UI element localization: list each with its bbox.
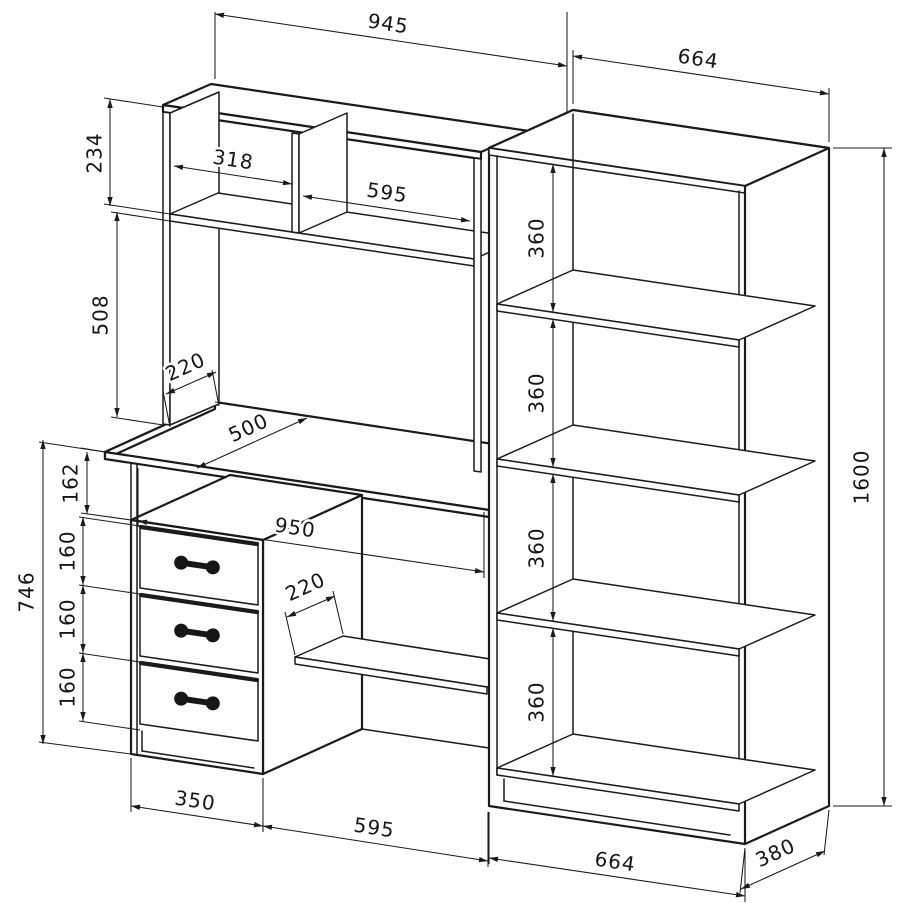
drawing-canvas: 9456642343185955082205001629507461601601… [0, 0, 903, 903]
dimension-160-11: 160 [56, 517, 141, 594]
dimension-label-360: 360 [525, 372, 549, 413]
dimension-label-162: 162 [59, 462, 83, 503]
dimension-label-160: 160 [56, 530, 80, 571]
dimension-label-234: 234 [83, 132, 107, 173]
dimension-1600-19: 1600 [833, 148, 892, 806]
dimension-label-664: 664 [676, 44, 720, 74]
dimension-label-664: 664 [593, 847, 637, 877]
kneehole-floor-back-edge [362, 729, 489, 748]
dimension-label-1600: 1600 [850, 450, 874, 505]
hutch-divider-front [292, 133, 299, 233]
dimension-label-595: 595 [352, 813, 396, 843]
furniture-dimension-drawing: 9456642343185955082205001629507461601601… [0, 0, 903, 903]
dimension-label-746: 746 [15, 571, 39, 612]
dimension-595-21: 595 [263, 812, 488, 867]
dimension-label-360: 360 [525, 217, 549, 258]
hutch-right-pillar-front [474, 158, 481, 472]
dimension-label-595: 595 [365, 178, 409, 208]
dimension-label-160: 160 [56, 666, 80, 707]
dimension-160-12: 160 [56, 585, 141, 662]
dimension-label-508: 508 [89, 294, 113, 335]
dimension-508-5: 508 [89, 212, 171, 425]
dimension-945-0: 945 [215, 9, 567, 68]
dimension-label-360: 360 [525, 681, 549, 722]
dimension-label-360: 360 [525, 527, 549, 568]
dimension-label-350: 350 [173, 786, 217, 816]
dimension-label-945: 945 [366, 9, 410, 39]
dimension-234-2: 234 [83, 98, 171, 214]
dimension-label-160: 160 [56, 598, 80, 639]
hutch-divider-side [299, 113, 347, 233]
dimension-160-13: 160 [56, 653, 141, 730]
